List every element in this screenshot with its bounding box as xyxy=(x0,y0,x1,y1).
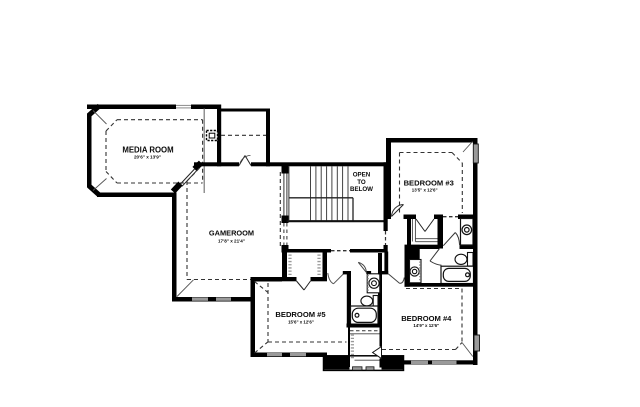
svg-text:GAMEROOM: GAMEROOM xyxy=(209,228,254,237)
svg-text:BEDROOM #3: BEDROOM #3 xyxy=(404,178,454,187)
svg-text:OPEN: OPEN xyxy=(353,172,371,179)
svg-text:20'6" x 13'9": 20'6" x 13'9" xyxy=(134,154,161,159)
svg-text:BEDROOM #4: BEDROOM #4 xyxy=(401,314,452,323)
svg-text:14'9" x 12'6": 14'9" x 12'6" xyxy=(413,323,439,328)
svg-text:MEDIA ROOM: MEDIA ROOM xyxy=(122,146,173,155)
svg-text:BEDROOM #5: BEDROOM #5 xyxy=(275,310,326,319)
svg-text:13'5" x 12'6": 13'5" x 12'6" xyxy=(412,188,438,193)
svg-text:15'6" x 12'6": 15'6" x 12'6" xyxy=(288,319,314,324)
svg-text:BELOW: BELOW xyxy=(350,186,373,193)
svg-text:TO: TO xyxy=(357,179,366,186)
svg-text:17'8" x 21'4": 17'8" x 21'4" xyxy=(218,239,245,244)
